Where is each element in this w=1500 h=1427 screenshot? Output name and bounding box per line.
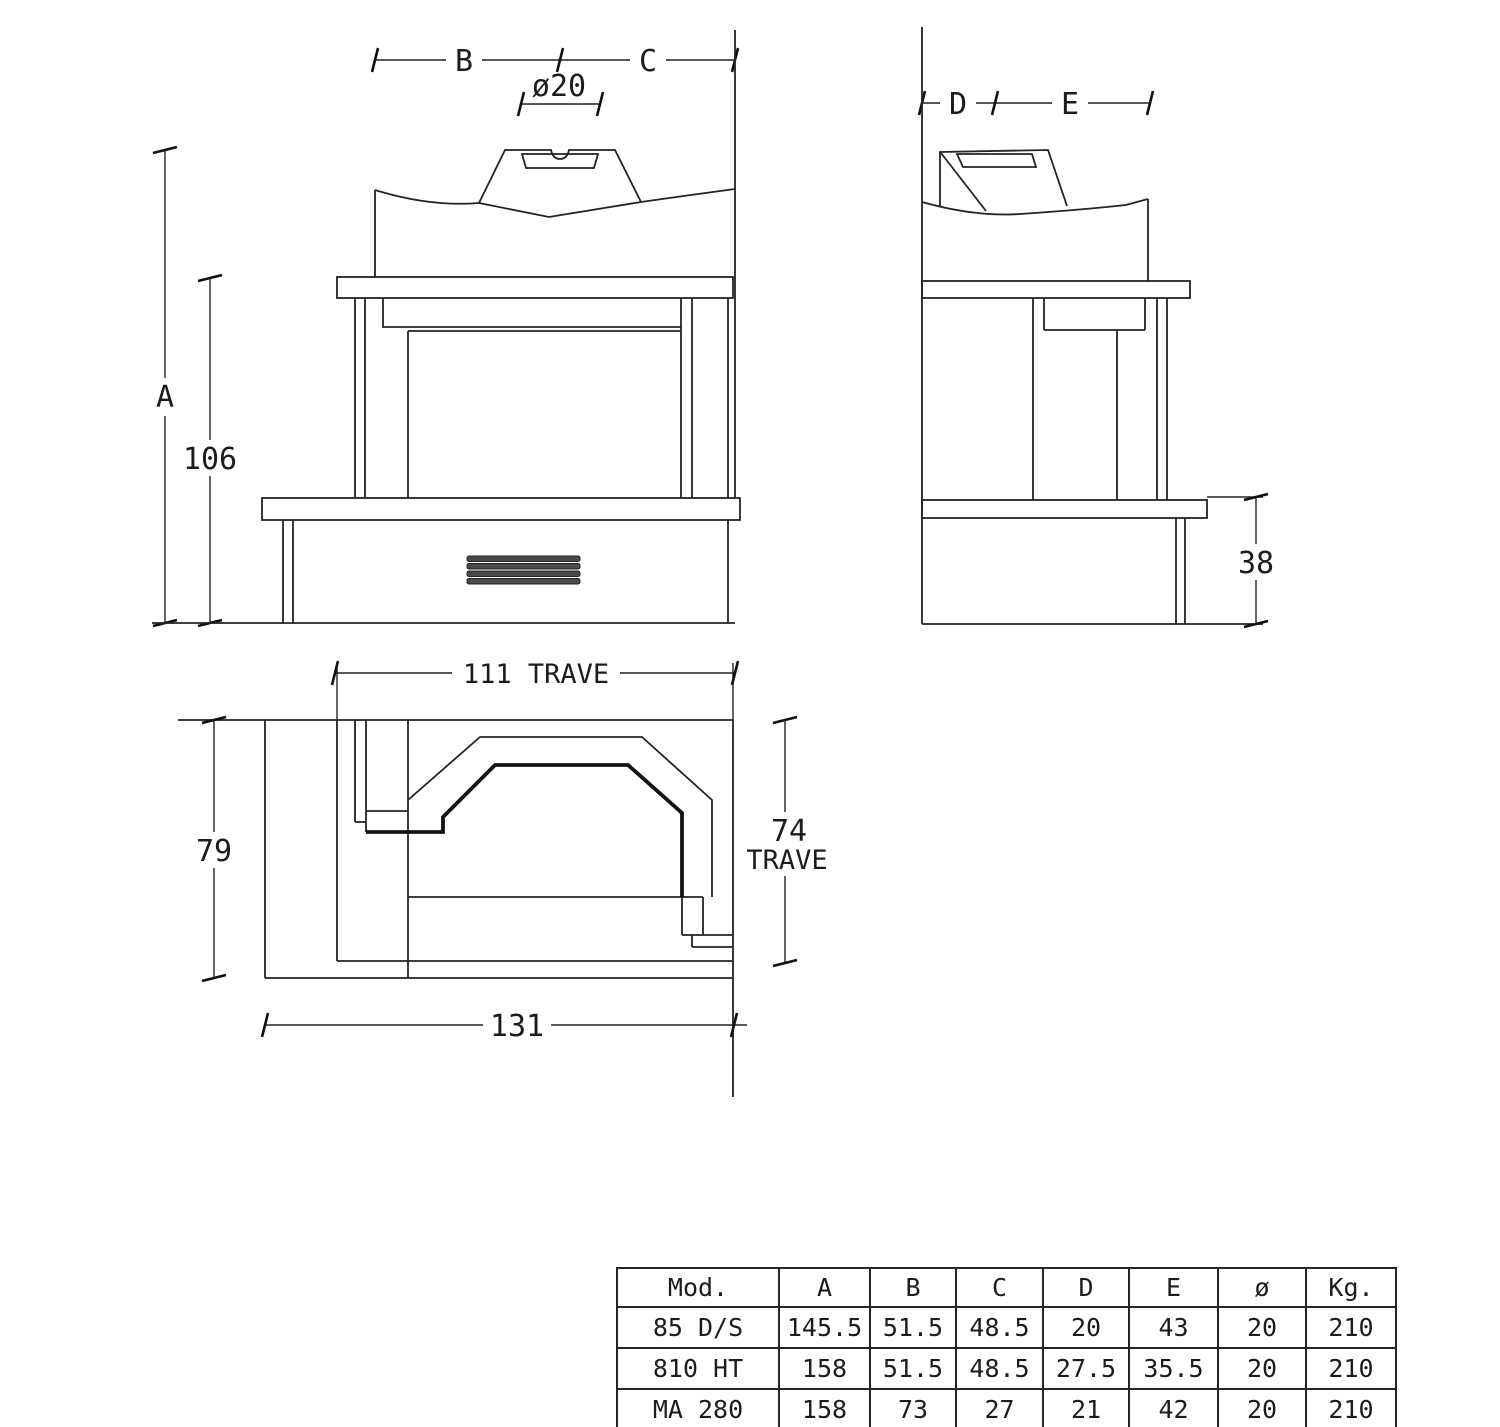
spec-cell: 27	[956, 1389, 1043, 1427]
dim-label-106: 106	[183, 442, 237, 477]
spec-cell: 43	[1129, 1307, 1218, 1348]
spec-header-d: D	[1043, 1268, 1129, 1307]
dim-111-trave: 111 TRAVE	[332, 657, 738, 720]
spec-cell: 210	[1306, 1307, 1396, 1348]
spec-cell: 158	[779, 1389, 870, 1427]
plan-view: 111 TRAVE 79	[178, 657, 834, 1097]
side-hearth-slab	[922, 500, 1207, 518]
spec-cell: 158	[779, 1348, 870, 1389]
dim-38: 38	[1207, 494, 1280, 627]
plan-interior	[337, 720, 733, 978]
spec-table-header-row: Mod. A B C D E ø Kg.	[617, 1268, 1396, 1307]
side-mantel-shelf	[922, 281, 1190, 298]
dim-79: 79	[190, 717, 238, 981]
dim-label-79: 79	[196, 834, 232, 869]
dim-131: 131	[262, 1009, 747, 1044]
spec-cell: 27.5	[1043, 1348, 1129, 1389]
dim-label-38: 38	[1238, 546, 1274, 581]
plan-outer-walls	[178, 720, 733, 1097]
spec-cell: 21	[1043, 1389, 1129, 1427]
fireplace-technical-drawing-page: B C ø20 A 106	[0, 0, 1500, 1427]
spec-cell: 51.5	[870, 1307, 956, 1348]
side-view: D E	[919, 27, 1280, 627]
spec-cell: 35.5	[1129, 1348, 1218, 1389]
spec-cell: 210	[1306, 1348, 1396, 1389]
side-flue-collar	[940, 150, 1067, 211]
spec-header-e: E	[1129, 1268, 1218, 1307]
spec-cell-model: 85 D/S	[617, 1307, 779, 1348]
spec-header-kg: Kg.	[1306, 1268, 1396, 1307]
plan-right-steps	[682, 897, 733, 947]
dim-flue-diameter: ø20	[518, 69, 603, 116]
side-base	[1176, 518, 1185, 624]
front-mantel-shelf	[337, 277, 733, 298]
dim-label-d: D	[949, 87, 967, 122]
front-hearth-slab	[262, 498, 740, 520]
spec-cell: 51.5	[870, 1348, 956, 1389]
dim-label-131: 131	[490, 1009, 544, 1044]
dim-label-74: 74	[771, 814, 807, 849]
spec-cell: 210	[1306, 1389, 1396, 1427]
dim-label-b: B	[455, 44, 473, 79]
spec-cell: 48.5	[956, 1348, 1043, 1389]
dim-label-111-trave: 111 TRAVE	[463, 659, 609, 690]
dim-106: 106	[176, 275, 244, 626]
side-hood	[922, 199, 1148, 281]
spec-cell-model: MA 280	[617, 1389, 779, 1427]
dim-a: A	[147, 147, 183, 626]
dim-label-c: C	[639, 44, 657, 79]
dim-label-e: E	[1061, 87, 1079, 122]
spec-table: Mod. A B C D E ø Kg. 85 D/S 145.5 51.5 4…	[616, 1267, 1397, 1427]
spec-header-mod: Mod.	[617, 1268, 779, 1307]
spec-cell: 48.5	[956, 1307, 1043, 1348]
spec-row-ma280: MA 280 158 73 27 21 42 20 210	[617, 1389, 1396, 1427]
front-view: B C ø20 A 106	[147, 30, 740, 626]
dim-label-74-trave: TRAVE	[746, 845, 827, 876]
dim-label-flue: ø20	[532, 69, 586, 104]
dim-d-e: D E	[919, 87, 1153, 122]
spec-cell: 73	[870, 1389, 956, 1427]
spec-header-diameter: ø	[1218, 1268, 1306, 1307]
spec-row-810ht: 810 HT 158 51.5 48.5 27.5 35.5 20 210	[617, 1348, 1396, 1389]
spec-header-b: B	[870, 1268, 956, 1307]
spec-header-a: A	[779, 1268, 870, 1307]
front-legs-firebox	[355, 298, 728, 498]
front-air-grille	[467, 556, 580, 584]
technical-drawing: B C ø20 A 106	[0, 0, 1500, 1427]
spec-cell: 20	[1218, 1348, 1306, 1389]
spec-cell: 20	[1043, 1307, 1129, 1348]
spec-cell: 42	[1129, 1389, 1218, 1427]
dim-74-trave: 74 TRAVE	[740, 717, 834, 966]
dim-label-a: A	[156, 380, 174, 415]
front-flue-collar	[479, 150, 641, 203]
side-legs-firebox	[1033, 298, 1167, 500]
plan-firebox-outer	[408, 737, 712, 897]
front-hood	[375, 189, 735, 277]
spec-cell-model: 810 HT	[617, 1348, 779, 1389]
spec-row-85ds: 85 D/S 145.5 51.5 48.5 20 43 20 210	[617, 1307, 1396, 1348]
spec-cell: 145.5	[779, 1307, 870, 1348]
spec-cell: 20	[1218, 1307, 1306, 1348]
spec-header-c: C	[956, 1268, 1043, 1307]
spec-cell: 20	[1218, 1389, 1306, 1427]
front-flue-collar-inner	[522, 154, 598, 168]
plan-firebox-inner	[366, 765, 682, 897]
